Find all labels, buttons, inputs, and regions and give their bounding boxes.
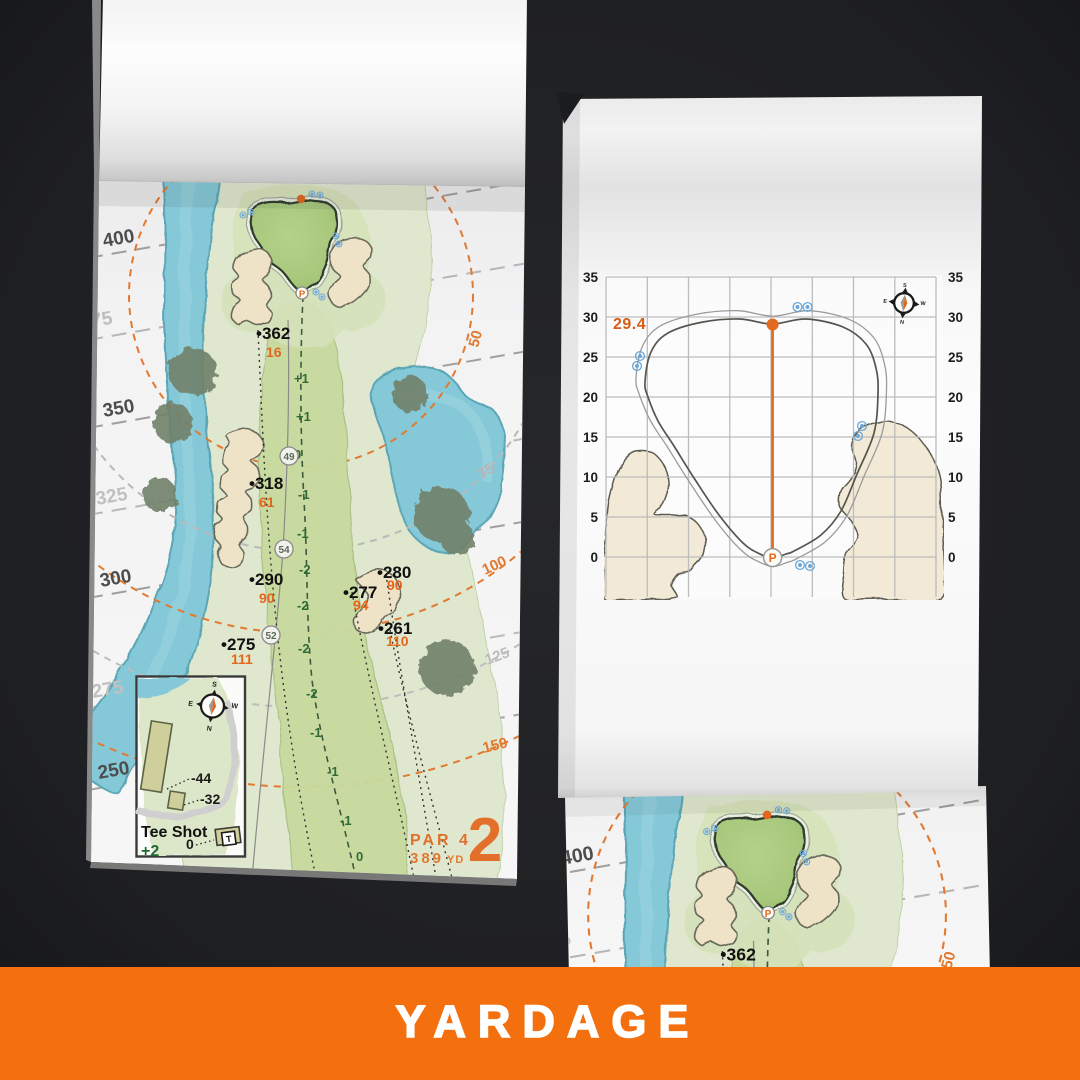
svg-text:15: 15 xyxy=(948,430,964,445)
svg-text:-1: -1 xyxy=(327,764,339,779)
svg-text:-1: -1 xyxy=(340,813,352,828)
svg-text:-2: -2 xyxy=(306,686,318,701)
svg-text:5: 5 xyxy=(590,510,598,525)
svg-text:94: 94 xyxy=(353,597,369,613)
svg-text:10: 10 xyxy=(948,470,963,485)
svg-text:110: 110 xyxy=(386,633,409,649)
svg-text:P: P xyxy=(299,289,306,300)
svg-text:20: 20 xyxy=(948,390,963,405)
svg-text:25: 25 xyxy=(948,350,964,365)
svg-text:29.4: 29.4 xyxy=(613,316,646,333)
svg-text:0: 0 xyxy=(590,550,598,565)
svg-text:-2: -2 xyxy=(297,598,309,613)
svg-text:P: P xyxy=(769,551,777,565)
svg-text:16: 16 xyxy=(266,344,282,360)
svg-text:+1: +1 xyxy=(294,371,309,386)
svg-text:-1: -1 xyxy=(310,725,322,740)
svg-text:•290: •290 xyxy=(249,570,283,589)
svg-text:•362: •362 xyxy=(256,324,290,343)
svg-text:20: 20 xyxy=(583,390,598,405)
svg-text:35: 35 xyxy=(948,270,964,285)
svg-text:0: 0 xyxy=(948,550,956,565)
svg-text:15: 15 xyxy=(583,430,599,445)
svg-text:N: N xyxy=(206,725,212,733)
svg-text:YARDAGE: YARDAGE xyxy=(396,996,701,1047)
svg-text:61: 61 xyxy=(259,494,275,510)
svg-text:0: 0 xyxy=(356,849,363,864)
svg-text:-2: -2 xyxy=(299,562,311,577)
svg-text:49: 49 xyxy=(283,452,295,463)
svg-text:-32: -32 xyxy=(200,791,220,807)
svg-text:5: 5 xyxy=(948,510,956,525)
svg-text:90: 90 xyxy=(387,577,403,593)
svg-text:54: 54 xyxy=(278,545,290,556)
svg-text:35: 35 xyxy=(583,270,599,285)
svg-text:30: 30 xyxy=(583,310,598,325)
svg-text:-44: -44 xyxy=(191,770,211,786)
svg-text:30: 30 xyxy=(948,310,963,325)
svg-text:25: 25 xyxy=(583,350,599,365)
svg-text:-1: -1 xyxy=(298,487,310,502)
svg-text:52: 52 xyxy=(265,631,277,642)
svg-text:90: 90 xyxy=(259,590,275,606)
svg-text:+2: +2 xyxy=(141,843,159,860)
svg-text:-1: -1 xyxy=(297,526,309,541)
svg-text:111: 111 xyxy=(231,651,253,667)
svg-text:10: 10 xyxy=(583,470,598,485)
svg-text:N: N xyxy=(900,320,905,326)
svg-text:2: 2 xyxy=(468,806,502,875)
svg-text:Tee Shot: Tee Shot xyxy=(141,824,208,841)
svg-text:PAR 4: PAR 4 xyxy=(410,832,471,849)
svg-text:-2: -2 xyxy=(298,641,310,656)
svg-text:+1: +1 xyxy=(296,409,311,424)
svg-text:•318: •318 xyxy=(249,474,283,493)
